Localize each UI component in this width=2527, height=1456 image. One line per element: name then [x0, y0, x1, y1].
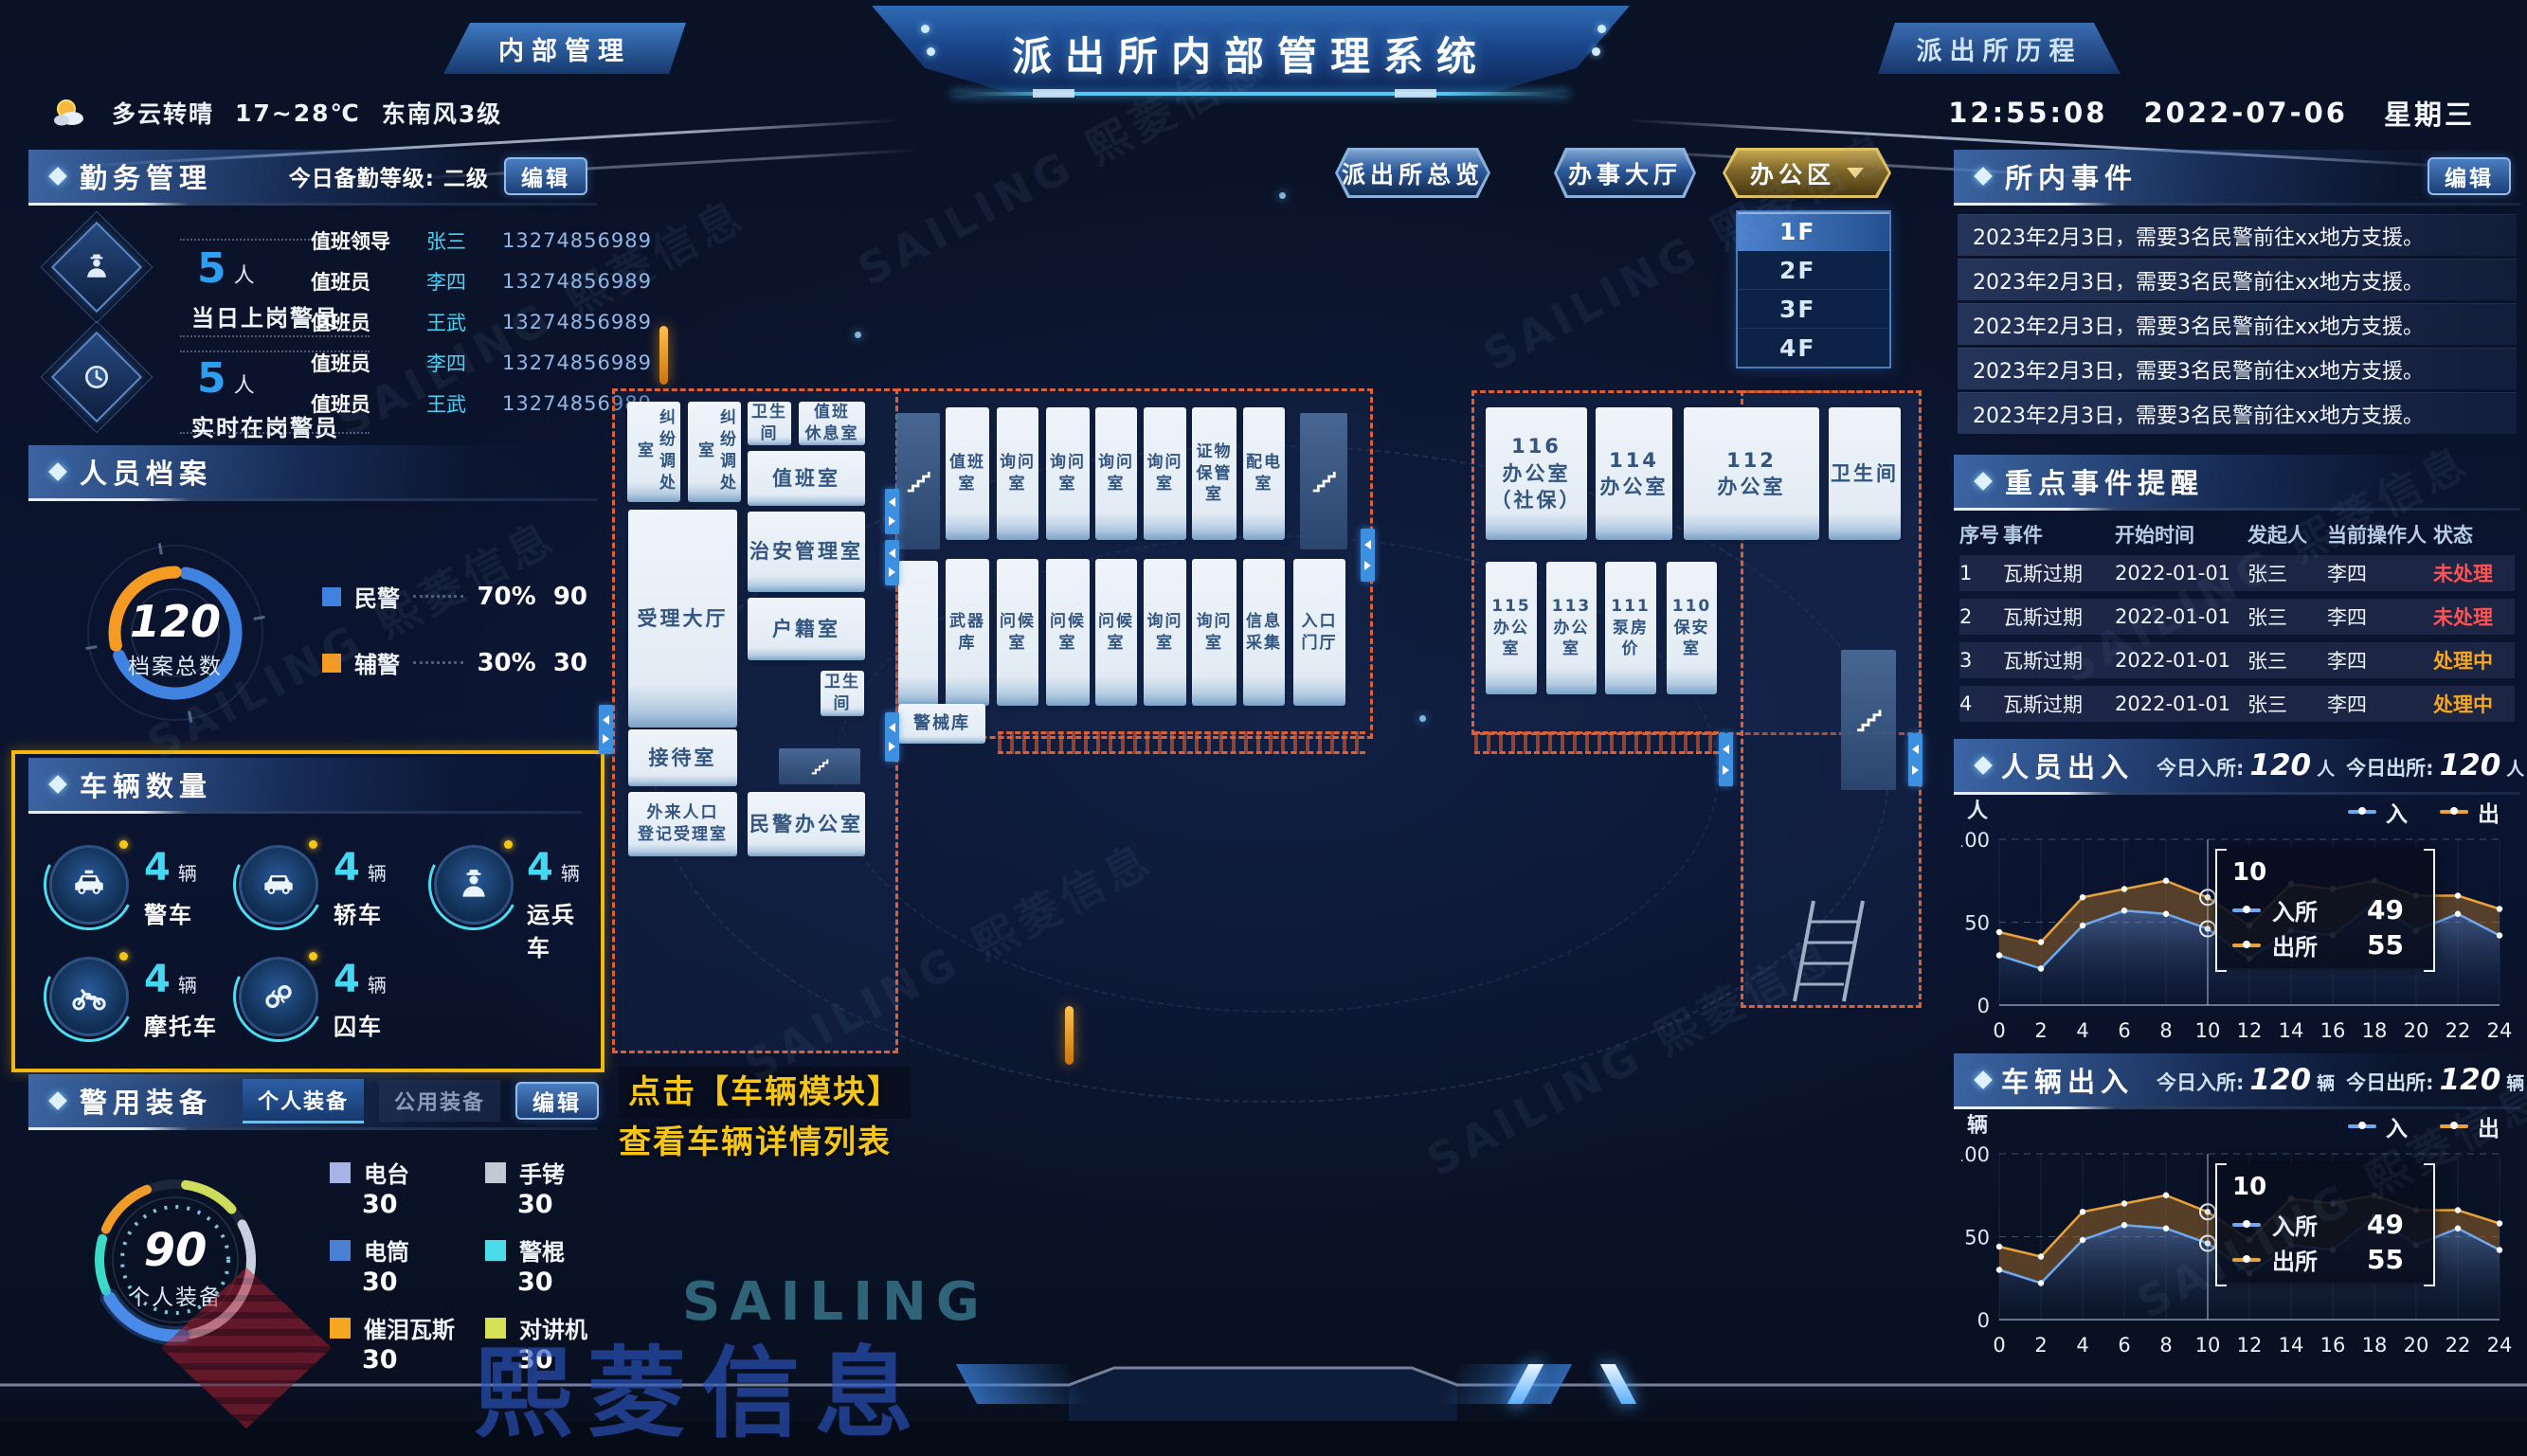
room[interactable]: 114 办公室 — [1596, 407, 1672, 540]
clock-time: 12:55:08 — [1948, 97, 2107, 129]
table-row: 3瓦斯过期2022-01-01张三李四处理中 — [1959, 642, 2515, 678]
equipment-item-radio: 电台 — [330, 1156, 409, 1189]
room[interactable]: 受理大厅 — [628, 510, 737, 728]
annotation-line1: 点击【车辆模块】 — [619, 1067, 911, 1119]
room[interactable]: 武器库 — [946, 559, 989, 706]
equipment-count: 30 — [362, 1267, 398, 1297]
event-item: 2023年2月3日，需要3名民警前往xx地方支援。 — [1958, 392, 2517, 434]
vehicle-item-sedan[interactable]: 4辆 轿车 — [334, 849, 387, 929]
room[interactable]: 值班 休息室 — [799, 402, 865, 445]
roster-name: 王武 — [426, 389, 489, 418]
view-tab-office-area[interactable]: 办公区 — [1723, 148, 1891, 198]
status-badge: 未处理 — [2433, 602, 2513, 631]
roster-name: 王武 — [426, 308, 489, 336]
vehicle-count: 4 — [527, 846, 553, 890]
equipment-item-handcuffs: 手铐 — [485, 1156, 565, 1189]
legend-label: 辅警 — [354, 646, 400, 679]
equipment-label: 对讲机 — [519, 1311, 587, 1344]
room[interactable]: 值班室 — [946, 407, 989, 540]
room[interactable]: 卫生间 — [821, 671, 864, 716]
tab-internal-management[interactable]: 内部管理 — [443, 23, 686, 74]
panel-vehicles[interactable]: 车辆数量 4辆 警车 4辆 轿车 4辆 运兵车 4辆 摩托车 4辆 囚车 — [28, 758, 582, 1057]
legend-label: 民警 — [354, 580, 400, 613]
legend-swatch — [485, 1318, 506, 1339]
equipment-count: 30 — [517, 1190, 553, 1219]
today-in-stat: 今日入所:120人 — [2157, 748, 2335, 782]
vehicle-unit: 辆 — [368, 862, 387, 885]
room[interactable]: 113 办公 室 — [1546, 562, 1597, 694]
duty-level: 今日备勤等级: 二级 — [289, 160, 489, 192]
equipment-count: 30 — [362, 1190, 398, 1219]
door-marker — [885, 489, 899, 534]
room[interactable]: 问候室 — [997, 559, 1038, 706]
diamond-icon — [48, 167, 67, 186]
panel-people-flow-title: 人员出入 — [2001, 746, 2134, 785]
room[interactable]: 纠纷调处室 — [688, 402, 741, 502]
svg-text:18: 18 — [2362, 1334, 2388, 1357]
diamond-icon — [48, 775, 67, 794]
roster-role: 值班员 — [311, 308, 413, 336]
tooltip-x: 10 — [2232, 858, 2422, 887]
y-axis-unit: 人 — [1967, 794, 1988, 824]
room-unlabeled[interactable] — [898, 561, 938, 706]
diamond-icon — [48, 462, 67, 481]
vehicle-count: 4 — [144, 958, 171, 1001]
weather-temp: 17~28℃ — [235, 99, 361, 127]
banner-dot — [921, 25, 930, 33]
svg-text:12: 12 — [2237, 1019, 2263, 1042]
tooltip-x: 10 — [2232, 1173, 2422, 1201]
equipment-total: 90 — [62, 1228, 289, 1273]
svg-text:50: 50 — [1964, 912, 1990, 935]
svg-text:10: 10 — [2195, 1019, 2221, 1042]
weather-bar: 多云转晴 17~28℃ 东南风3级 — [49, 95, 502, 131]
table-row: 4瓦斯过期2022-01-01张三李四处理中 — [1959, 686, 2515, 722]
room[interactable]: 问候室 — [1046, 559, 1090, 706]
duty-roster: 值班领导 张三 13274856989 值班员 李四 13274856989 值… — [311, 224, 595, 421]
col-operator: 当前操作人 — [2327, 520, 2433, 548]
room[interactable]: 115 办公 室 — [1486, 562, 1537, 694]
room[interactable]: 接待室 — [628, 729, 737, 786]
weather-icon — [49, 97, 91, 129]
vehicle-count: 4 — [334, 958, 360, 1001]
clock-weekday: 星期三 — [2384, 93, 2475, 133]
roster-role: 值班员 — [311, 349, 413, 377]
archive-total-label: 档案总数 — [62, 648, 289, 680]
handcuffs-icon[interactable] — [239, 957, 318, 1036]
banner-notch — [1395, 89, 1436, 98]
footer-decor — [0, 1357, 2527, 1421]
room[interactable]: 询问室 — [1144, 559, 1186, 706]
people-flow-chart: 人 入 出 050100024681012141618202224 10 入所4… — [1961, 794, 2513, 1048]
legend-swatch — [485, 1162, 506, 1183]
legend-line-out — [2440, 1124, 2468, 1128]
col-initiator: 发起人 — [2247, 520, 2327, 548]
floor-dropdown: 1F 2F 3F 4F — [1736, 210, 1891, 368]
panel-vehicle-flow-header: 车辆出入 今日入所:120辆 今日出所:120辆 — [1954, 1053, 2520, 1106]
banner-notch — [1033, 89, 1074, 98]
room[interactable]: 治安管理室 — [748, 512, 865, 592]
equipment-item-walkie-talkie: 对讲机 — [485, 1311, 587, 1344]
chevron-down-icon — [1847, 168, 1864, 178]
legend-dots — [413, 661, 463, 664]
stairs-icon — [1300, 413, 1347, 549]
chart-tooltip: 10 入所49 出所55 — [2215, 849, 2435, 968]
legend-dots — [413, 595, 463, 598]
col-event: 事件 — [2003, 520, 2115, 548]
status-badge: 未处理 — [2433, 559, 2513, 587]
equipment-label: 手铐 — [519, 1156, 565, 1189]
table-row: 1瓦斯过期2022-01-01张三李四未处理 — [1959, 555, 2515, 591]
roster-row: 值班员 李四 13274856989 — [311, 264, 595, 298]
equipment-label: 警棍 — [519, 1233, 565, 1267]
vehicle-unit: 辆 — [178, 862, 197, 885]
legend-item-fujing: 辅警 30% 30 — [322, 646, 587, 679]
legend-value: 30% 30 — [477, 649, 587, 677]
today-out-stat: 今日出所:120辆 — [2346, 1063, 2524, 1097]
duty-stat-realtime: 5人 — [197, 358, 255, 400]
room[interactable]: 民警办公室 — [748, 792, 865, 856]
legend-swatch — [322, 587, 341, 606]
decor-lamp — [1065, 1006, 1074, 1065]
panel-events-header: 所内事件 编辑 — [1954, 150, 2520, 203]
vehicle-unit: 辆 — [368, 974, 387, 997]
vehicle-count: 4 — [334, 846, 360, 890]
svg-text:10: 10 — [2195, 1334, 2221, 1357]
panel-vehicles-title: 车辆数量 — [80, 764, 212, 804]
panel-personnel-header: 人员档案 — [28, 445, 597, 498]
tab-personal-equipment[interactable]: 个人装备 — [243, 1079, 364, 1123]
equipment-label: 电筒 — [364, 1233, 409, 1267]
vehicle-label: 运兵车 — [527, 896, 582, 962]
door-marker — [1719, 733, 1733, 786]
room[interactable]: 外来人口 登记受理室 — [628, 792, 737, 856]
ladder-icon — [1789, 895, 1868, 1007]
view-tab-overview[interactable]: 派出所总览 — [1335, 148, 1490, 198]
svg-text:6: 6 — [2118, 1019, 2130, 1042]
legend-swatch — [330, 1318, 351, 1339]
svg-text:0: 0 — [1977, 1309, 1990, 1332]
equipment-label: 催泪瓦斯 — [364, 1311, 455, 1344]
svg-text:24: 24 — [2487, 1019, 2513, 1042]
svg-text:2: 2 — [2034, 1019, 2047, 1042]
diamond-icon — [1974, 167, 1993, 186]
svg-text:22: 22 — [2446, 1334, 2471, 1357]
today-out-stat: 今日出所:120人 — [2346, 748, 2524, 782]
room[interactable]: 信息采集 — [1243, 559, 1285, 706]
panel-events: 所内事件 编辑 2023年2月3日，需要3名民警前往xx地方支援。 2023年2… — [1954, 150, 2520, 445]
panel-key-events: 重点事件提醒 序号 事件 开始时间 发起人 当前操作人 状态 1瓦斯过期2022… — [1954, 455, 2520, 735]
vehicle-label: 警车 — [144, 896, 197, 929]
realtime-stat-diamond — [51, 332, 142, 422]
door-marker — [1361, 529, 1375, 582]
decor-dot — [1419, 715, 1426, 722]
stairs-icon — [1841, 650, 1896, 790]
panel-duty-title: 勤务管理 — [80, 156, 212, 196]
equipment-total-label: 个人装备 — [62, 1279, 289, 1311]
footer-glow — [1437, 1364, 1572, 1404]
view-tab-service-hall[interactable]: 办事大厅 — [1554, 148, 1696, 198]
room[interactable]: 配电室 — [1243, 407, 1285, 540]
duty-edit-button[interactable]: 编辑 — [504, 157, 587, 195]
door-marker — [599, 705, 613, 754]
vehicle-item-troop-carrier[interactable]: 4辆 运兵车 — [527, 849, 582, 962]
roster-row: 值班员 王武 13274856989 — [311, 386, 595, 421]
roster-role: 值班领导 — [311, 226, 413, 255]
equipment-item-flashlight: 电筒 — [330, 1233, 409, 1267]
floor-item-4f[interactable]: 4F — [1738, 329, 1889, 367]
roster-row: 值班员 王武 13274856989 — [311, 305, 595, 339]
legend-value: 70% 90 — [477, 583, 587, 611]
svg-text:100: 100 — [1961, 829, 1990, 852]
roster-role: 值班员 — [311, 389, 413, 418]
roster-row: 值班领导 张三 13274856989 — [311, 224, 595, 258]
roster-row: 值班员 李四 13274856989 — [311, 346, 595, 380]
status-badge: 处理中 — [2433, 690, 2513, 718]
floor-item-1f[interactable]: 1F — [1738, 212, 1889, 251]
svg-text:8: 8 — [2159, 1334, 2172, 1357]
svg-text:2: 2 — [2034, 1334, 2047, 1357]
roster-phone: 13274856989 — [502, 351, 652, 374]
legend-line-in — [2348, 810, 2376, 814]
room[interactable]: 111 泵房 价 — [1605, 562, 1656, 694]
room[interactable]: 纠纷调处室 — [627, 402, 680, 502]
clock-date: 2022-07-06 — [2143, 97, 2348, 129]
stairs-icon — [779, 748, 860, 784]
footer-glow — [956, 1364, 1091, 1404]
motorcycle-icon[interactable] — [49, 957, 129, 1036]
room[interactable]: 询问室 — [1144, 407, 1186, 540]
panel-vehicle-flow-title: 车辆出入 — [2001, 1060, 2134, 1100]
svg-text:16: 16 — [2320, 1334, 2346, 1357]
sailing-brand-watermark: SAILING — [682, 1271, 989, 1333]
svg-text:8: 8 — [2159, 1019, 2172, 1042]
panel-equipment-title: 警用装备 — [80, 1081, 212, 1121]
svg-text:0: 0 — [1993, 1334, 2005, 1357]
donut-center: 120 档案总数 — [62, 599, 289, 680]
equipment-item-baton: 警棍 — [485, 1233, 565, 1267]
weather-condition: 多云转晴 — [112, 96, 214, 130]
legend-item-minjing: 民警 70% 90 — [322, 580, 587, 613]
banner-dot — [927, 47, 935, 56]
event-item: 2023年2月3日，需要3名民警前往xx地方支援。 — [1958, 214, 2517, 256]
banner-dot — [1597, 25, 1606, 33]
col-start: 开始时间 — [2115, 520, 2247, 548]
svg-text:50: 50 — [1964, 1227, 1990, 1249]
table-row: 2瓦斯过期2022-01-01张三李四未处理 — [1959, 599, 2515, 635]
equipment-label: 电台 — [364, 1156, 409, 1189]
room[interactable]: 112 办公室 — [1684, 407, 1819, 540]
panel-duty-header: 勤务管理 今日备勤等级: 二级 编辑 — [28, 150, 597, 203]
panel-personnel-title: 人员档案 — [80, 452, 212, 492]
room[interactable]: 卫生间 — [748, 402, 791, 445]
svg-text:12: 12 — [2237, 1334, 2263, 1357]
room[interactable]: 询问室 — [1192, 559, 1236, 706]
panel-key-events-title: 重点事件提醒 — [2005, 461, 2204, 501]
vehicle-item-motorcycle[interactable]: 4辆 摩托车 — [144, 961, 218, 1041]
roster-name: 李四 — [426, 349, 489, 377]
room[interactable]: 警械库 — [898, 704, 985, 744]
legend-swatch — [322, 654, 341, 673]
panel-vehicle-flow: 车辆出入 今日入所:120辆 今日出所:120辆 辆 入 出 050100024… — [1954, 1053, 2520, 1383]
chart-legend: 入 出 — [2348, 1110, 2500, 1142]
officer-stat-diamond — [51, 222, 142, 313]
decor-dot — [1279, 192, 1286, 199]
legend-swatch — [330, 1240, 351, 1261]
tab-station-history[interactable]: 派出所历程 — [1878, 23, 2121, 74]
floor-item-3f[interactable]: 3F — [1738, 290, 1889, 329]
y-axis-unit: 辆 — [1967, 1108, 1988, 1139]
legend-swatch — [330, 1162, 351, 1183]
diamond-icon — [1974, 1070, 1993, 1089]
room[interactable]: 入口 门厅 — [1293, 559, 1345, 706]
panel-people-flow-header: 人员出入 今日入所:120人 今日出所:120人 — [1954, 739, 2520, 792]
corridor-crosswalk — [1474, 731, 1719, 754]
svg-text:18: 18 — [2362, 1019, 2388, 1042]
diamond-icon — [1974, 472, 1993, 491]
svg-text:14: 14 — [2279, 1334, 2304, 1357]
svg-text:22: 22 — [2446, 1019, 2471, 1042]
roster-name: 李四 — [426, 267, 489, 296]
vehicle-label: 轿车 — [334, 896, 387, 929]
svg-text:0: 0 — [1977, 995, 1990, 1017]
dashboard-root: { "header": { "left_tab": "内部管理", "title… — [0, 0, 2527, 1421]
panel-events-title: 所内事件 — [2005, 156, 2138, 196]
realtime-officers-value: 5 — [197, 354, 226, 403]
status-badge: 处理中 — [2433, 646, 2513, 674]
chart-legend: 入 出 — [2348, 796, 2500, 828]
chart-tooltip: 10 入所49 出所55 — [2215, 1163, 2435, 1283]
col-status: 状态 — [2433, 520, 2513, 548]
clock-bar: 12:55:08 2022-07-06 星期三 — [1895, 95, 2475, 131]
corridor-crosswalk — [998, 731, 1365, 754]
police-officer-icon — [66, 237, 127, 297]
dotted-divider — [180, 432, 370, 434]
roster-phone: 13274856989 — [502, 311, 652, 333]
events-edit-button[interactable]: 编辑 — [2428, 157, 2511, 195]
room[interactable]: 110 保安 室 — [1667, 562, 1717, 694]
decor-lamp — [659, 326, 668, 385]
legend-swatch — [485, 1240, 506, 1261]
vehicle-unit: 辆 — [561, 862, 580, 885]
decor-dot — [855, 332, 861, 338]
diamond-icon — [1974, 756, 1993, 775]
vehicle-label: 囚车 — [334, 1008, 387, 1041]
svg-text:14: 14 — [2279, 1019, 2304, 1042]
legend-line-in — [2348, 1124, 2376, 1128]
svg-text:100: 100 — [1961, 1143, 1990, 1166]
vehicle-item-prisoner-van[interactable]: 4辆 囚车 — [334, 961, 387, 1041]
vehicle-count: 4 — [144, 846, 171, 890]
today-officers-value: 5 — [197, 244, 226, 293]
vehicle-flow-chart: 辆 入 出 050100024681012141618202224 10 入所4… — [1961, 1108, 2513, 1362]
vehicle-module-annotation: 点击【车辆模块】 查看车辆详情列表 — [619, 1067, 911, 1167]
svg-text:24: 24 — [2487, 1334, 2513, 1357]
room[interactable]: 询问室 — [1095, 407, 1137, 540]
floor-item-2f[interactable]: 2F — [1738, 251, 1889, 290]
svg-text:20: 20 — [2404, 1334, 2429, 1357]
gauge-center: 90 个人装备 — [62, 1228, 289, 1311]
car-icon[interactable] — [239, 845, 318, 925]
room[interactable]: 证物 保管室 — [1192, 407, 1236, 540]
svg-text:16: 16 — [2320, 1019, 2346, 1042]
clock-icon — [66, 347, 127, 407]
panel-equipment-header: 警用装备 个人装备 公用装备 编辑 — [28, 1074, 597, 1127]
weather-wind: 东南风3级 — [382, 96, 502, 130]
archive-total: 120 — [62, 599, 289, 644]
panel-vehicles-header: 车辆数量 — [28, 758, 582, 811]
equipment-count: 30 — [517, 1267, 553, 1297]
roster-role: 值班员 — [311, 267, 413, 296]
svg-text:4: 4 — [2076, 1019, 2088, 1042]
room[interactable]: 值班室 — [748, 451, 865, 506]
equipment-item-tear-gas: 催泪瓦斯 — [330, 1311, 455, 1344]
today-officers-unit: 人 — [234, 264, 255, 288]
door-marker — [885, 540, 899, 585]
col-no: 序号 — [1959, 520, 2003, 548]
event-item: 2023年2月3日，需要3名民警前往xx地方支援。 — [1958, 303, 2517, 345]
svg-text:4: 4 — [2076, 1334, 2088, 1357]
room[interactable]: 卫生间 — [1829, 407, 1901, 540]
roster-phone: 13274856989 — [502, 270, 652, 293]
event-item: 2023年2月3日，需要3名民警前往xx地方支援。 — [1958, 259, 2517, 300]
stairs-icon — [896, 413, 940, 549]
svg-text:0: 0 — [1993, 1019, 2005, 1042]
room[interactable]: 询问室 — [997, 407, 1038, 540]
svg-text:20: 20 — [2404, 1019, 2429, 1042]
roster-phone: 13274856989 — [502, 229, 652, 252]
room[interactable]: 116 办公室 （社保） — [1486, 407, 1587, 540]
panel-personnel: 人员档案 120 档案总数 民警 70% 90 辅警 30% 30 — [28, 445, 597, 746]
page-title: 派出所内部管理系统 — [872, 25, 1630, 82]
vehicle-label: 摩托车 — [144, 1008, 218, 1041]
event-item: 2023年2月3日，需要3名民警前往xx地方支援。 — [1958, 348, 2517, 389]
panel-key-events-header: 重点事件提醒 — [1954, 455, 2520, 508]
door-marker — [1908, 733, 1922, 786]
duty-stat-today: 5人 — [197, 248, 255, 290]
diamond-icon — [48, 1091, 67, 1110]
table-header: 序号 事件 开始时间 发起人 当前操作人 状态 — [1959, 517, 2515, 551]
svg-text:6: 6 — [2118, 1334, 2130, 1357]
police-car-icon[interactable] — [49, 845, 129, 925]
annotation-line2: 查看车辆详情列表 — [619, 1123, 892, 1161]
room[interactable]: 询问室 — [1046, 407, 1090, 540]
banner-dot — [1592, 47, 1600, 56]
room[interactable]: 问候室 — [1095, 559, 1137, 706]
realtime-officers-unit: 人 — [234, 374, 255, 398]
panel-people-flow: 人员出入 今日入所:120人 今日出所:120人 人 入 出 050100024… — [1954, 739, 2520, 1048]
room[interactable]: 户籍室 — [748, 598, 865, 660]
roster-name: 张三 — [426, 226, 489, 255]
today-in-stat: 今日入所:120辆 — [2157, 1063, 2335, 1097]
vehicle-item-police-car[interactable]: 4辆 警车 — [144, 849, 197, 929]
door-marker — [885, 712, 899, 762]
panel-duty: 勤务管理 今日备勤等级: 二级 编辑 5人 当日上岗警员 5人 实时在岗警员 — [28, 150, 597, 436]
equipment-edit-button[interactable]: 编辑 — [515, 1082, 599, 1120]
tab-public-equipment[interactable]: 公用装备 — [379, 1080, 500, 1122]
vehicle-unit: 辆 — [178, 974, 197, 997]
troop-officer-icon[interactable] — [434, 845, 514, 925]
legend-line-out — [2440, 810, 2468, 814]
